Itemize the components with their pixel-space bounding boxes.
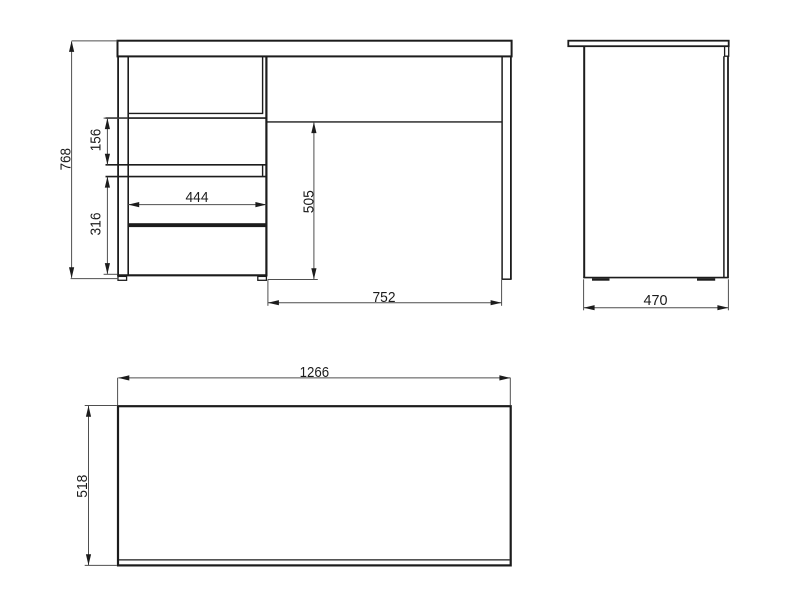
svg-text:768: 768 — [58, 148, 75, 171]
svg-text:444: 444 — [186, 189, 209, 206]
svg-text:470: 470 — [644, 292, 668, 309]
svg-text:156: 156 — [87, 129, 104, 152]
svg-text:1266: 1266 — [300, 364, 330, 381]
svg-text:752: 752 — [373, 289, 396, 306]
svg-text:316: 316 — [87, 213, 104, 236]
svg-text:518: 518 — [74, 475, 91, 498]
svg-text:505: 505 — [300, 190, 317, 213]
